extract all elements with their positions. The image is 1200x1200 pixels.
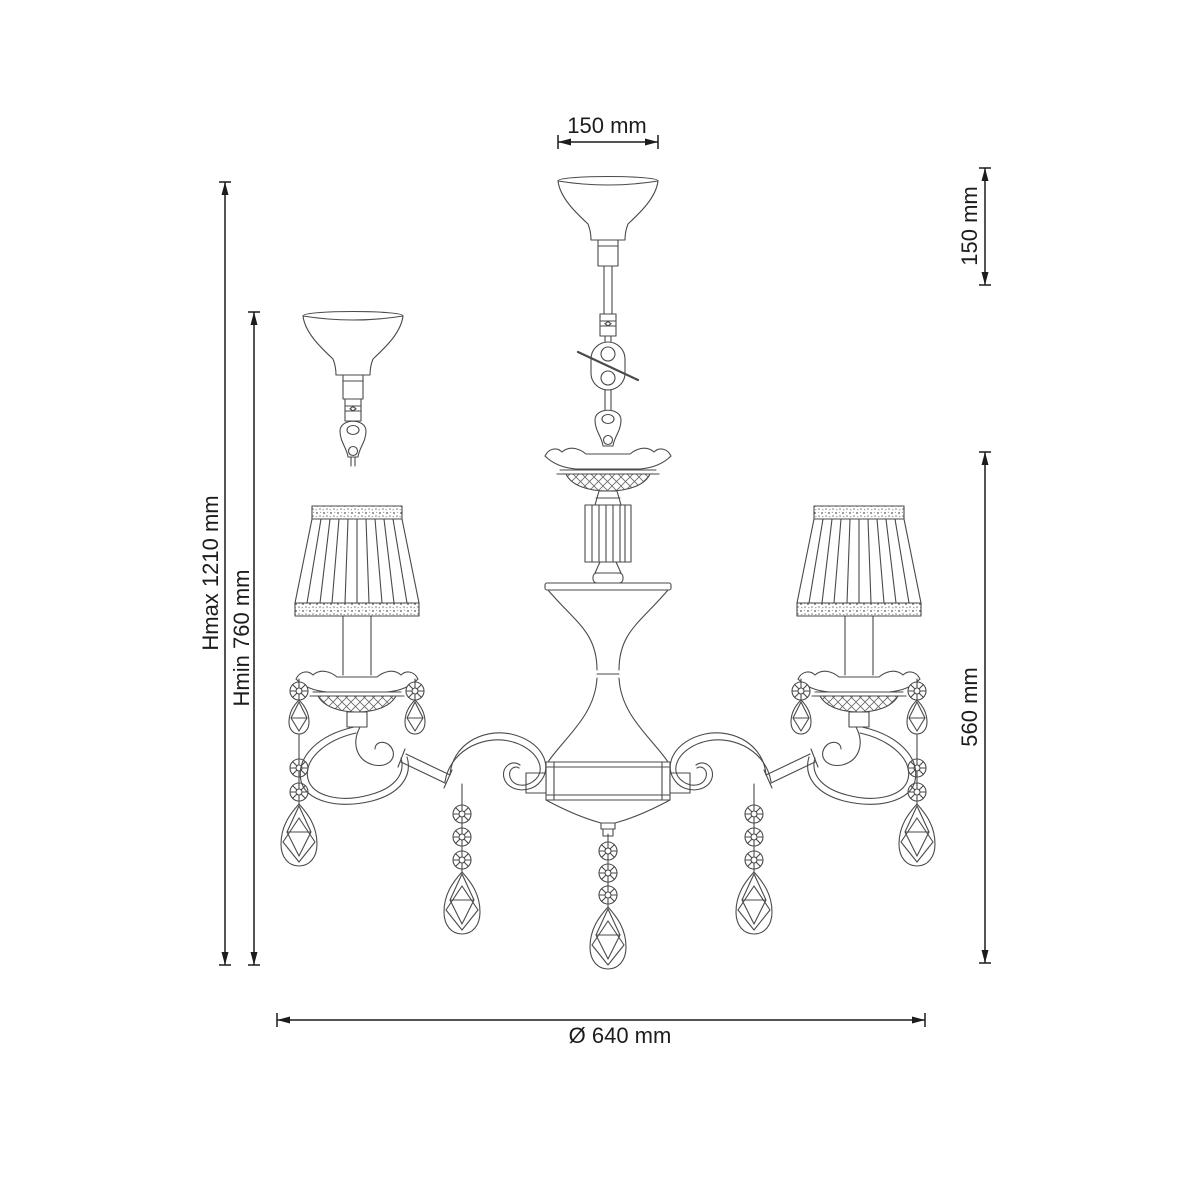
dim-label-diameter: Ø 640 mm [569,1023,672,1048]
dim-diameter: Ø 640 mm [277,1013,925,1048]
dim-label-height-max: Hmax 1210 mm [198,495,223,650]
central-column [526,448,690,836]
dim-arrow-down [982,950,989,963]
dim-arrow-right [645,139,658,146]
dim-label-suspension-height: 150 mm [957,186,982,265]
dim-suspension-height: 150 mm [957,168,991,285]
dim-arrow-right [912,1017,925,1024]
chandelier-line-art [281,177,935,970]
dim-height-min: Hmin 760 mm [229,312,260,965]
dim-arrow-left [558,139,571,146]
dim-body-height: 560 mm [957,452,991,963]
ceiling-canopy-spare [303,312,403,467]
dim-arrow-up [251,312,258,325]
dim-canopy-width: 150 mm [558,113,658,149]
chain-link-adjustable [578,342,638,446]
dim-arrow-down [251,952,258,965]
technical-drawing-canvas: 150 mm 150 mm Hmax 1210 mm Hmin 760 mm 5… [0,0,1200,1200]
dim-arrow-down [982,272,989,285]
candle-arm-left [281,506,546,934]
center-crystal-chain [590,834,626,969]
dim-arrow-up [982,168,989,181]
dim-label-height-min: Hmin 760 mm [229,570,254,707]
dim-arrow-up [222,182,229,195]
ceiling-canopy-main [558,177,658,343]
chandelier-diagram: 150 mm 150 mm Hmax 1210 mm Hmin 760 mm 5… [0,0,1200,1200]
dim-arrow-up [982,452,989,465]
candle-arm-right [670,506,935,934]
dim-arrow-left [277,1017,290,1024]
dim-label-canopy-width: 150 mm [567,113,646,138]
dim-label-body-height: 560 mm [957,667,982,746]
dim-arrow-down [222,952,229,965]
dim-height-max: Hmax 1210 mm [198,182,231,965]
